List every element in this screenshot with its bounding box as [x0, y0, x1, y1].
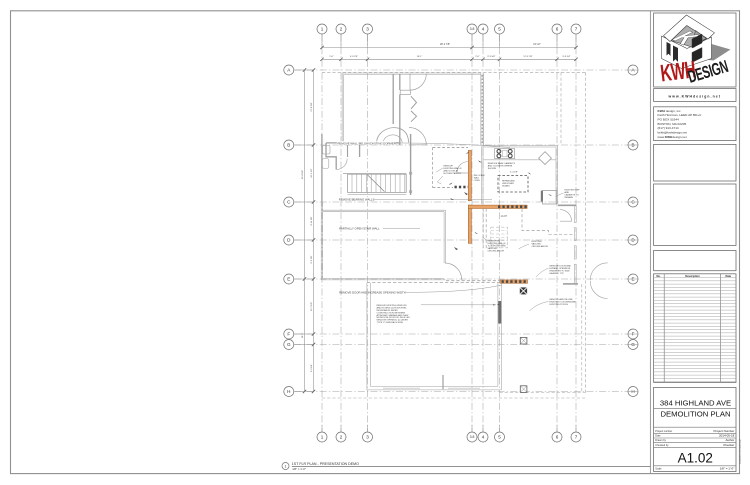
svg-text:No.: No.	[657, 274, 661, 278]
svg-text:1/8" = 1'-0": 1/8" = 1'-0"	[292, 467, 306, 471]
svg-text:BOSTON, MA 02205: BOSTON, MA 02205	[658, 122, 687, 126]
svg-text:Description: Description	[685, 274, 700, 278]
svg-text:MUDROOM (IN WOOD IN-FILLED: MUDROOM (IN WOOD IN-FILLED	[377, 317, 411, 319]
svg-text:keith@kwhdesign.net: keith@kwhdesign.net	[658, 131, 688, 135]
svg-text:17'-8 3/4": 17'-8 3/4"	[311, 102, 313, 111]
svg-text:B: B	[287, 143, 290, 148]
svg-text:Checked by: Checked by	[655, 444, 669, 447]
svg-text:5/18/2014 12:16:35 AM: 5/18/2014 12:16:35 AM	[739, 439, 742, 464]
svg-text:2'-6": 2'-6"	[329, 56, 334, 58]
svg-text:2: 2	[340, 27, 343, 32]
svg-text:REMOVE EXISTING WINDOW: REMOVE EXISTING WINDOW	[377, 305, 408, 307]
svg-text:REMOVE (1): REMOVE (1)	[488, 241, 501, 243]
svg-text:2'-0": 2'-0"	[475, 56, 480, 58]
svg-text:H: H	[287, 389, 290, 394]
svg-text:Date: Date	[655, 434, 661, 437]
svg-text:6: 6	[556, 27, 559, 32]
svg-text:2014-05-18: 2014-05-18	[719, 433, 735, 437]
svg-text:12'-5 7/8": 12'-5 7/8"	[523, 56, 532, 58]
svg-text:3: 3	[366, 27, 369, 32]
svg-text:3.8: 3.8	[470, 435, 475, 439]
svg-text:34'-8 5/8": 34'-8 5/8"	[302, 170, 304, 179]
svg-text:Project Number: Project Number	[713, 429, 734, 433]
svg-text:16'-1": 16'-1"	[417, 56, 423, 58]
svg-text:CONSTRUCTION BETWEEN: CONSTRUCTION BETWEEN	[377, 312, 406, 314]
svg-text:28'-2 7/8": 28'-2 7/8"	[440, 43, 450, 46]
svg-text:10'-1 1/2": 10'-1 1/2"	[311, 168, 313, 177]
svg-text:F: F	[287, 332, 290, 337]
svg-text:E: E	[287, 277, 290, 282]
svg-text:1: 1	[285, 464, 287, 468]
svg-text:5: 5	[498, 435, 501, 440]
svg-text:1: 1	[321, 435, 324, 440]
svg-text:4: 4	[482, 435, 485, 440]
svg-text:www.KWHdesign.net: www.KWHdesign.net	[658, 135, 687, 139]
svg-text:REMOVE WALL BELOW EXISTING DOR: REMOVE WALL BELOW EXISTING DORMER	[338, 141, 396, 145]
svg-text:DEMOLITION PLAN: DEMOLITION PLAN	[660, 410, 730, 419]
svg-text:9'-3 3/4": 9'-3 3/4"	[562, 56, 570, 58]
svg-text:9'-2 1/4": 9'-2 1/4"	[311, 364, 313, 372]
svg-text:6: 6	[556, 435, 559, 440]
svg-text:5'-3 1/8": 5'-3 1/8"	[510, 172, 518, 174]
svg-text:13'-7 1/8": 13'-7 1/8"	[311, 302, 313, 311]
svg-text:Date: Date	[725, 274, 731, 278]
svg-text:EXISTING PORCH: EXISTING PORCH	[550, 304, 569, 306]
svg-text:REMOVE DOOR AND INCREASE OPENI: REMOVE DOOR AND INCREASE OPENING WIDTH	[339, 290, 406, 294]
svg-text:REMOVE: REMOVE	[444, 166, 454, 168]
svg-text:1ST FLR PLAN - PRESENTATION DE: 1ST FLR PLAN - PRESENTATION DEMO	[292, 462, 359, 466]
svg-text:3'-3 5/8": 3'-3 5/8"	[487, 56, 495, 58]
svg-text:16'-10": 16'-10"	[533, 43, 541, 46]
svg-text:2: 2	[340, 435, 343, 440]
svg-text:REMOVE BEARING WALLS: REMOVE BEARING WALLS	[339, 198, 375, 202]
svg-text:LENGTHEN: LENGTHEN	[502, 183, 514, 185]
svg-text:8'-11 1/8": 8'-11 1/8"	[311, 216, 313, 225]
svg-text:5: 5	[498, 27, 501, 32]
svg-text:Project number: Project number	[655, 430, 672, 433]
svg-text:1/8" = 1'-0": 1/8" = 1'-0"	[720, 467, 735, 471]
svg-text:384 HIGHLAND AVE: 384 HIGHLAND AVE	[660, 398, 731, 407]
svg-text:1: 1	[321, 27, 324, 32]
svg-text:SHOWN: SHOWN	[488, 168, 497, 170]
svg-text:TO EXPOSE NEW: TO EXPOSE NEW	[488, 245, 507, 247]
svg-text:Scale: Scale	[655, 468, 662, 471]
svg-text:Keith Hinzman, LEED AP BD+C: Keith Hinzman, LEED AP BD+C	[658, 113, 703, 117]
svg-text:3.8: 3.8	[470, 27, 475, 31]
svg-text:7: 7	[575, 435, 578, 440]
svg-text:Checker: Checker	[723, 443, 734, 447]
svg-text:EXISTING REF: EXISTING REF	[565, 190, 581, 192]
svg-text:4'-9 7/8": 4'-9 7/8"	[350, 56, 358, 58]
svg-text:www.KWHdesign.net: www.KWHdesign.net	[668, 95, 721, 99]
svg-text:G: G	[287, 342, 291, 347]
svg-text:7: 7	[575, 27, 578, 32]
svg-text:3: 3	[366, 435, 369, 440]
svg-text:A1.02: A1.02	[678, 450, 713, 465]
svg-text:PARTIALLY OPEN STAIR WALL: PARTIALLY OPEN STAIR WALL	[339, 227, 380, 231]
svg-text:Drawn by: Drawn by	[655, 439, 666, 442]
svg-text:Author: Author	[725, 438, 734, 442]
svg-text:EXISTING: EXISTING	[532, 241, 542, 243]
svg-text:4: 4	[482, 27, 485, 32]
svg-text:14.07: 14.07	[501, 214, 508, 218]
svg-text:6'-5 1/8": 6'-5 1/8"	[311, 255, 313, 263]
svg-text:OVEN: OVEN	[474, 180, 480, 182]
svg-text:ENGINEER TO SIZE: ENGINEER TO SIZE	[550, 270, 571, 272]
svg-text:16'-2": 16'-2"	[302, 332, 304, 338]
